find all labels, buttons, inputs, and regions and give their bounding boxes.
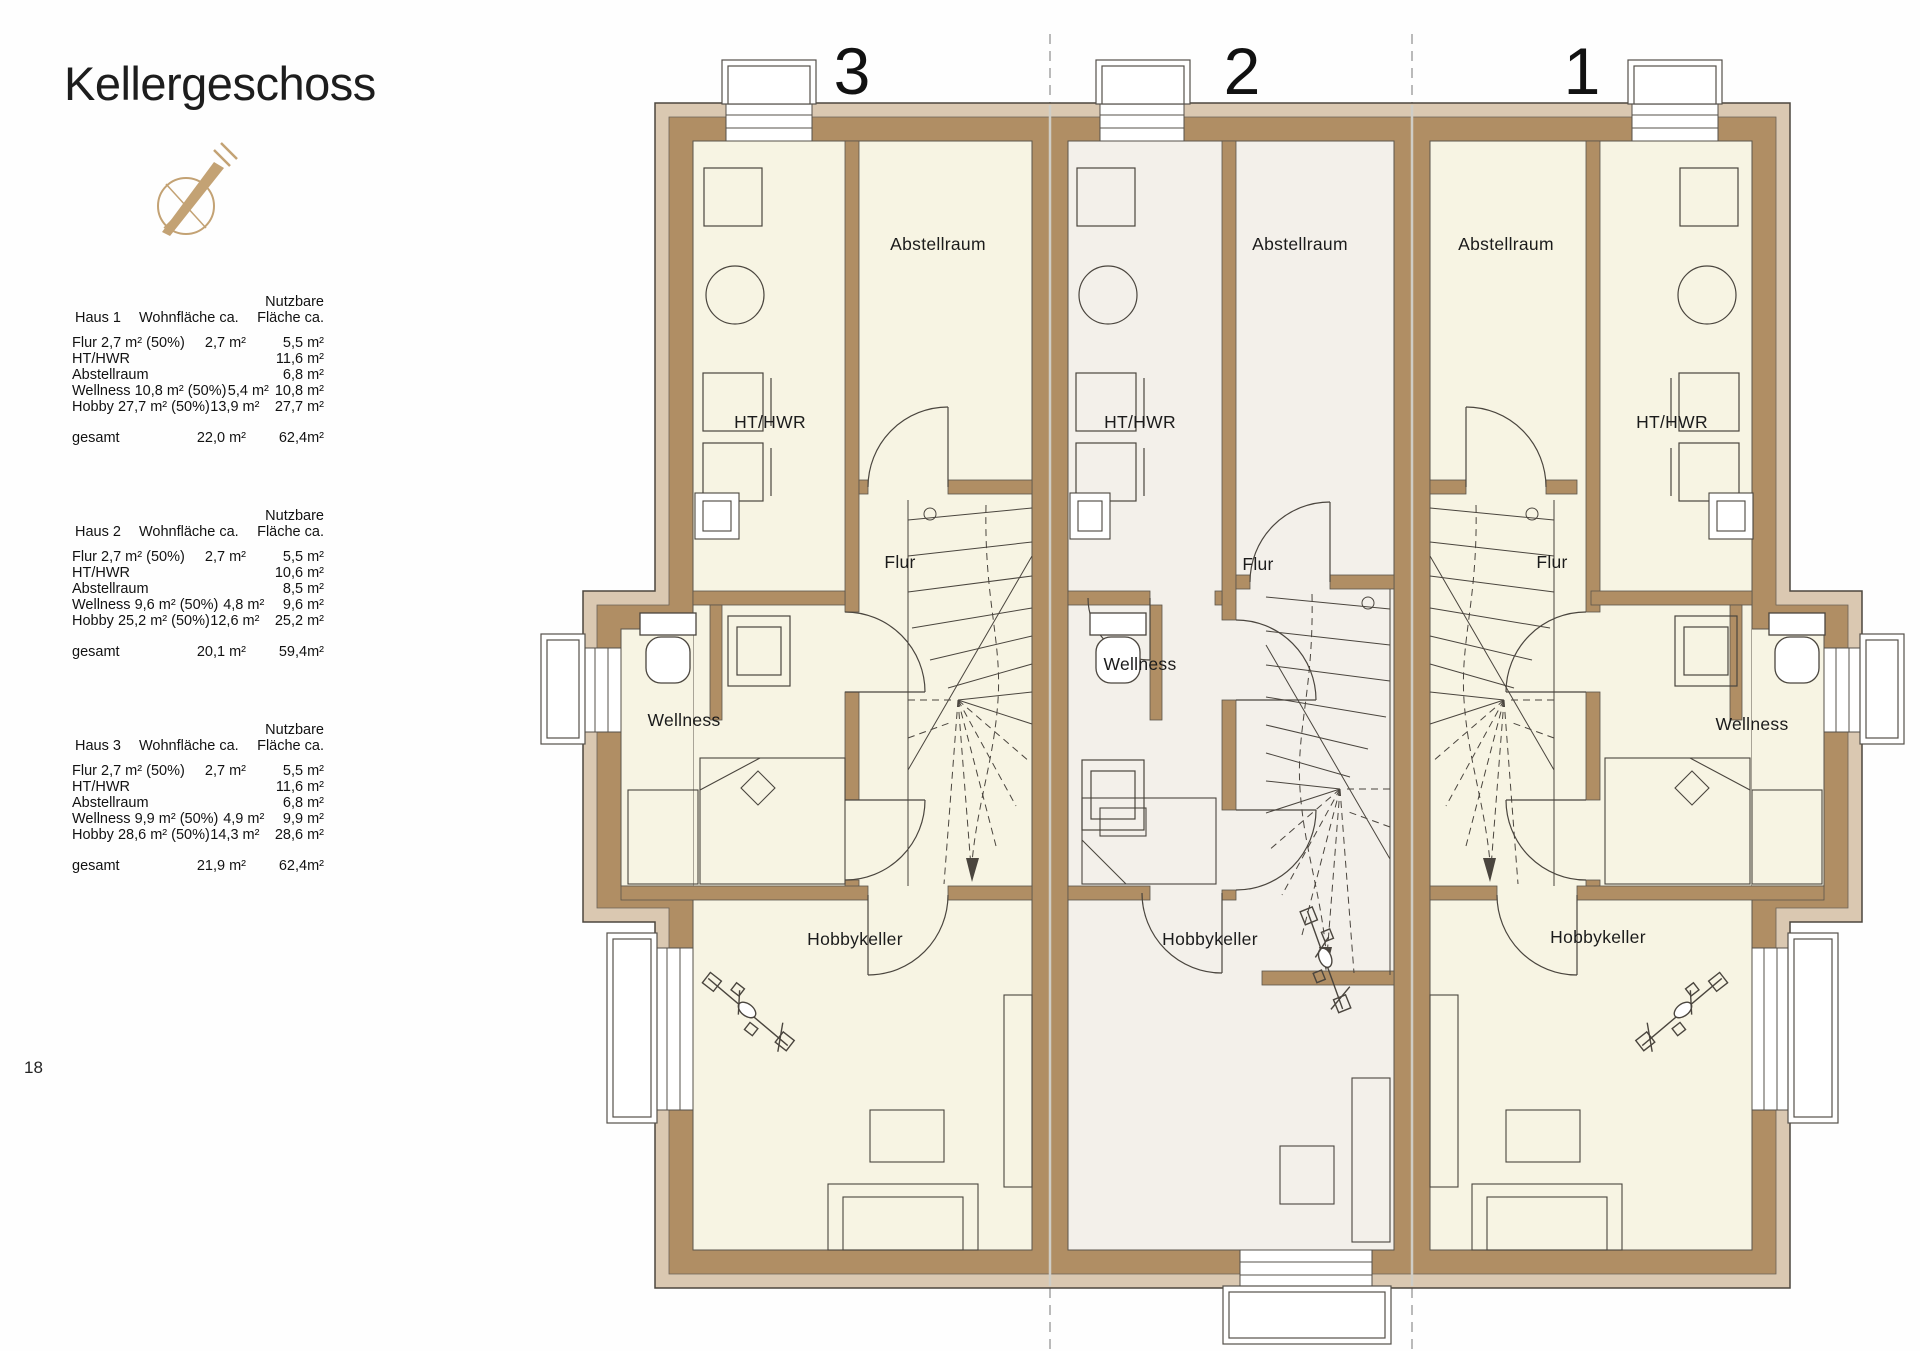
room-label-hobbykeller-haus1: Hobbykeller (1550, 927, 1646, 947)
room-label-ht-hwr-haus3: HT/HWR (734, 412, 806, 432)
room-label-hobbykeller-haus3: Hobbykeller (807, 929, 903, 949)
room-label-ht-hwr-haus1: HT/HWR (1636, 412, 1708, 432)
house-number-1: 1 (1564, 34, 1601, 108)
compass-north-icon (158, 143, 237, 236)
document-page: Kellergeschoss 18 Nutzbare Haus 1Wohnflä… (0, 0, 1920, 1351)
house-number-2: 2 (1224, 34, 1261, 108)
house-number-3: 3 (834, 34, 871, 108)
room-label-wellness-haus2: Wellness (1103, 654, 1176, 674)
room-label-hobbykeller-haus2: Hobbykeller (1162, 929, 1258, 949)
room-label-abstellraum-haus1: Abstellraum (1458, 234, 1554, 254)
room-label-ht-hwr-haus2: HT/HWR (1104, 412, 1176, 432)
room-label-flur-haus1: Flur (1536, 552, 1567, 572)
room-label-abstellraum-haus2: Abstellraum (1252, 234, 1348, 254)
room-label-abstellraum-haus3: Abstellraum (890, 234, 986, 254)
room-label-flur-haus2: Flur (1242, 554, 1273, 574)
floor-plan-drawing: HT/HWR Abstellraum Flur Wellness Hobbyke… (0, 0, 1920, 1351)
room-label-wellness-haus3: Wellness (647, 710, 720, 730)
room-label-flur-haus3: Flur (884, 552, 915, 572)
room-label-wellness-haus1: Wellness (1715, 714, 1788, 734)
